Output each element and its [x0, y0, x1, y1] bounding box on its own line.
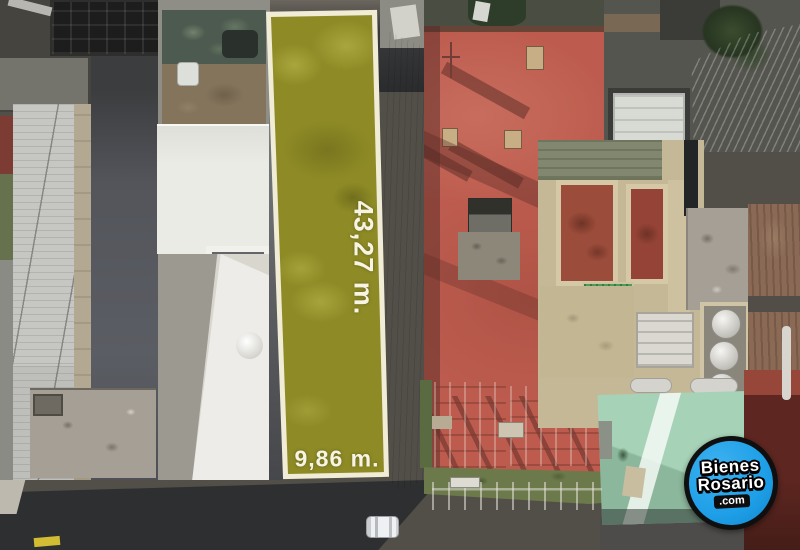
vent-pipe [782, 326, 791, 400]
cream-terrace [540, 286, 634, 378]
concrete-terrace [30, 388, 156, 478]
green-wall [420, 380, 432, 468]
white-building-roof [157, 124, 273, 254]
gray-rooftop [0, 58, 88, 110]
lot-depth-label: 43,27 m. [348, 201, 379, 316]
rooftop-unit [613, 93, 685, 147]
aerial-photo: 43,27 m. 9,86 m. Bienes Rosario .com [0, 0, 800, 550]
antenna [450, 42, 452, 78]
green-roof-band [538, 140, 662, 180]
neighbor-green-roof [0, 174, 13, 260]
service-terrace [686, 208, 752, 310]
lot-width-label: 9,86 m. [295, 446, 380, 473]
ac-unit [498, 422, 524, 438]
ac-unit [432, 416, 452, 429]
stair-bulkhead [468, 198, 512, 234]
shadow-gap [684, 140, 698, 216]
terrace-top [158, 0, 270, 126]
logo-text-rosario: Rosario [697, 473, 765, 493]
white-building-lower-roof [158, 254, 272, 480]
water-tank-dome [236, 332, 263, 359]
rooftop-shed [33, 394, 63, 416]
terrace-object [622, 466, 646, 498]
water-tank [711, 309, 741, 339]
tiled-courtyard [626, 184, 668, 284]
brown-side-wall [748, 204, 800, 378]
wall-band [748, 296, 800, 312]
chimney-shadow [441, 62, 530, 119]
dark-vehicle [222, 30, 258, 58]
white-car [366, 516, 399, 538]
concrete-patch [458, 232, 520, 280]
white-vehicle-top [177, 62, 199, 86]
water-tank-horizontal [630, 378, 672, 393]
parapet-edge [424, 26, 604, 32]
plant [614, 443, 632, 467]
corrugated-roof-left [13, 104, 74, 366]
neighbor-red-roof [0, 116, 13, 174]
cream-building [538, 140, 704, 428]
chimney [526, 46, 544, 70]
tiled-courtyard [556, 180, 618, 286]
white-roof-panel [636, 312, 694, 368]
highlighted-lot: 43,27 m. 9,86 m. [262, 8, 402, 486]
facade-sign [450, 477, 480, 488]
water-tank [709, 341, 739, 371]
chimney [504, 130, 522, 149]
antenna [442, 56, 460, 58]
logo-text-com: .com [714, 494, 750, 509]
neighbor-gray-roof [0, 260, 13, 480]
